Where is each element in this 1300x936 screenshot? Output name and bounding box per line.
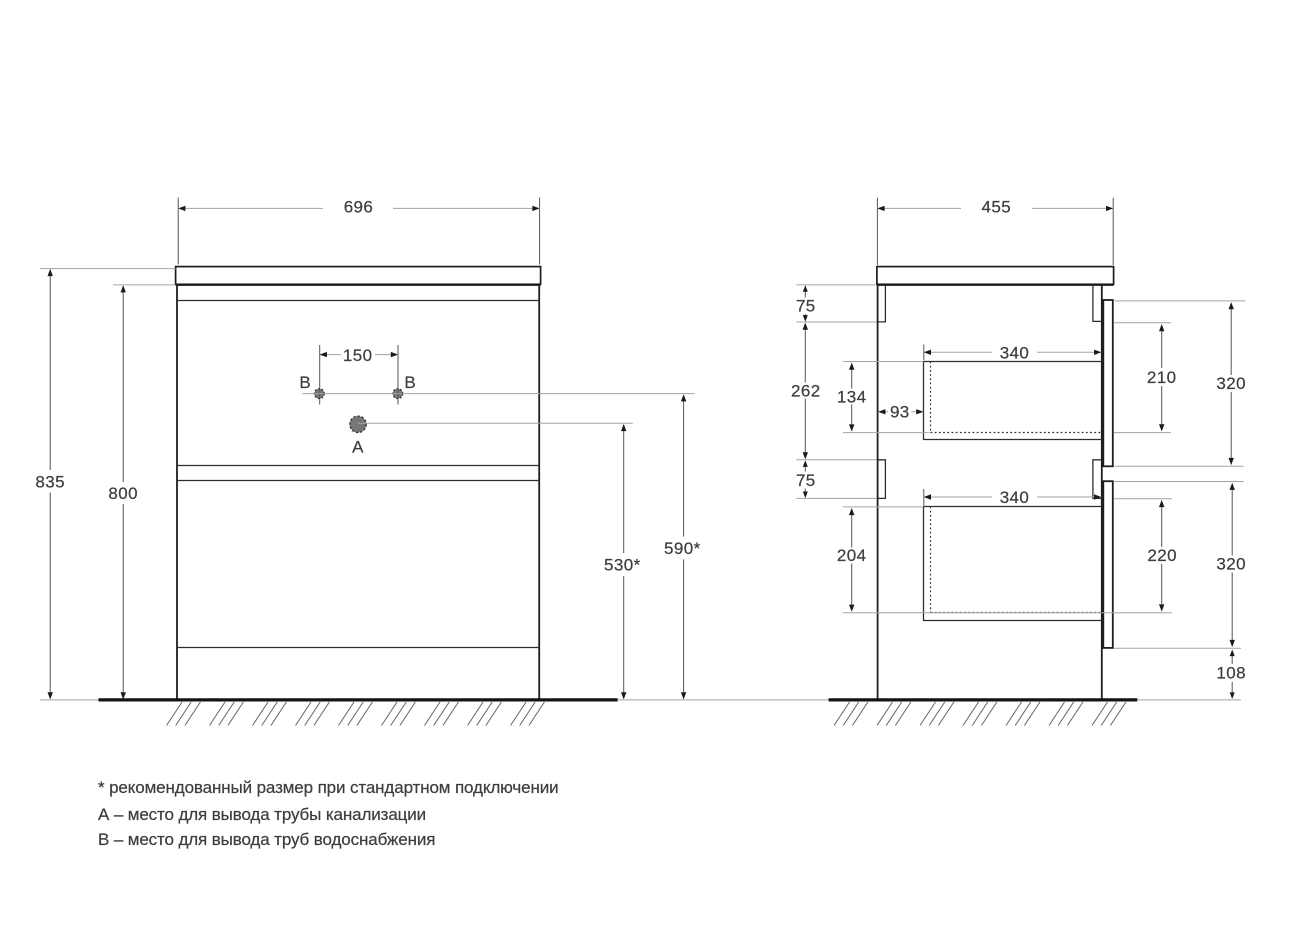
svg-text:340: 340: [1000, 344, 1030, 363]
svg-text:590*: 590*: [664, 539, 701, 558]
svg-text:262: 262: [791, 381, 821, 400]
svg-text:* рекомендованный размер при с: * рекомендованный размер при стандартном…: [98, 778, 558, 797]
svg-text:134: 134: [837, 387, 867, 406]
svg-text:108: 108: [1216, 664, 1246, 683]
svg-text:530*: 530*: [604, 555, 641, 574]
svg-text:320: 320: [1216, 374, 1246, 393]
svg-text:800: 800: [108, 484, 138, 503]
svg-text:210: 210: [1147, 368, 1177, 387]
svg-text:75: 75: [796, 297, 816, 316]
svg-text:220: 220: [1147, 546, 1177, 565]
svg-text:А – место для вывода трубы кан: А – место для вывода трубы канализации: [98, 805, 426, 824]
svg-text:204: 204: [837, 546, 867, 565]
svg-text:B: B: [299, 373, 311, 392]
svg-text:В – место для вывода труб водо: В – место для вывода труб водоснабжения: [98, 830, 435, 849]
svg-text:A: A: [352, 438, 364, 457]
svg-text:93: 93: [890, 403, 910, 422]
svg-text:835: 835: [35, 472, 65, 491]
svg-text:320: 320: [1216, 555, 1246, 574]
svg-text:150: 150: [343, 346, 373, 365]
svg-text:75: 75: [796, 471, 816, 490]
svg-text:696: 696: [344, 198, 374, 217]
svg-text:340: 340: [1000, 488, 1030, 507]
svg-text:455: 455: [982, 198, 1012, 217]
svg-text:B: B: [404, 373, 416, 392]
